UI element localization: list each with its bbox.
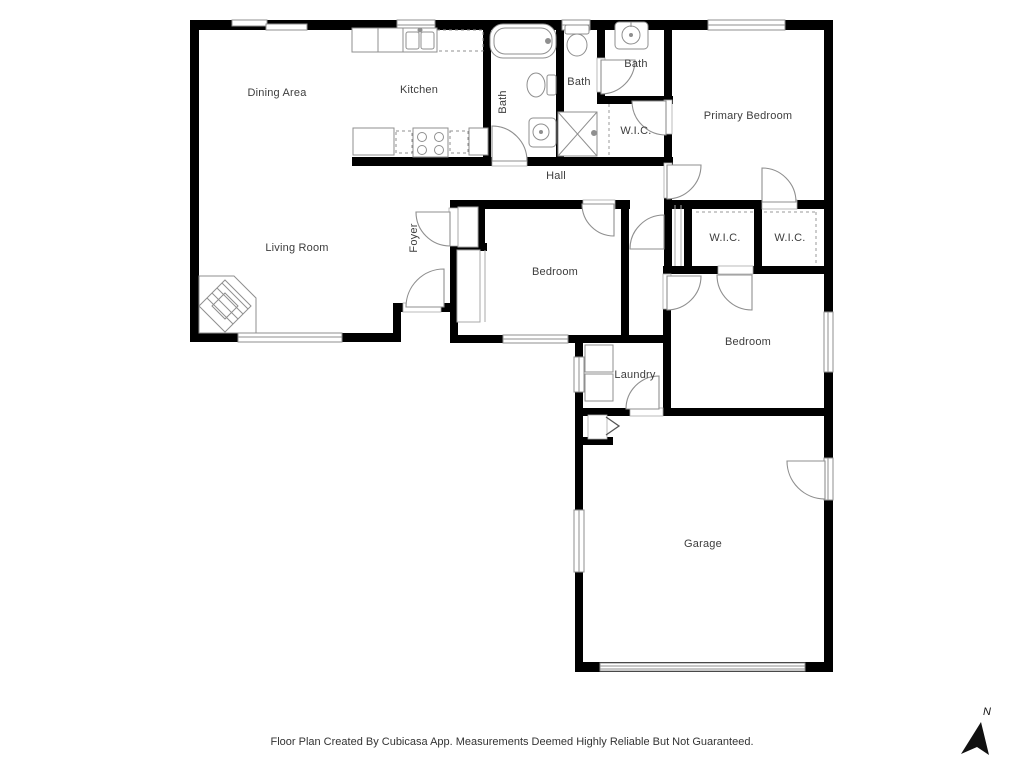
window [574,510,584,572]
floor-plan-page: Dining Area Kitchen Bath Bath Bath W.I.C… [0,0,1024,768]
door-threshold [718,266,753,274]
north-label: N [983,706,991,718]
window [266,24,307,30]
door-arc [667,165,701,199]
room-label-bedroom-right: Bedroom [725,336,771,348]
floor-plan-drawing [0,0,1024,768]
fixtures [199,22,816,435]
room-label-wic-left: W.I.C. [709,232,740,244]
stove [413,128,448,157]
room-label-primary-bedroom: Primary Bedroom [704,110,793,122]
north-arrow-icon [961,722,989,755]
room-label-wic-right: W.I.C. [774,232,805,244]
room-label-garage: Garage [684,538,722,550]
room-label-bedroom-middle: Bedroom [532,266,578,278]
room-label-wic-top: W.I.C. [620,125,651,137]
window [503,335,568,343]
window [232,20,267,26]
footer-disclaimer: Floor Plan Created By Cubicasa App. Meas… [270,736,753,748]
kitchen-sink [403,28,437,52]
garage-door [600,663,805,671]
toilet [527,73,556,97]
room-label-kitchen: Kitchen [400,84,438,96]
door-arc [787,461,825,499]
room-label-laundry: Laundry [614,369,655,381]
door-arc [630,215,664,249]
shower [558,112,597,156]
room-label-foyer: Foyer [408,223,420,252]
room-label-bath-left: Bath [497,90,509,113]
toilet [565,25,589,56]
sink [529,118,556,147]
dryer [585,374,613,401]
refrigerator [353,128,394,155]
door-arc [582,204,614,236]
window [824,312,833,372]
window [574,357,584,392]
window [238,333,342,342]
door-arc [717,275,752,310]
window [708,20,785,30]
entry-threshold [588,415,607,439]
sink [615,22,648,49]
room-label-bath-right: Bath [624,58,647,70]
door-arc [416,212,450,246]
kitchen-counter [450,128,488,155]
room-label-hall: Hall [546,170,566,182]
bathtub [490,24,556,58]
fireplace [199,276,256,333]
dishwasher [396,131,412,153]
door-arc [667,276,701,310]
washer [585,345,613,372]
room-label-bath-middle: Bath [567,76,590,88]
entry-chevron-icon [606,417,619,435]
room-label-dining-area: Dining Area [247,87,306,99]
door-arc [762,168,796,202]
door-arc [406,269,444,307]
room-label-living-room: Living Room [265,242,328,254]
door-arc [492,126,527,161]
